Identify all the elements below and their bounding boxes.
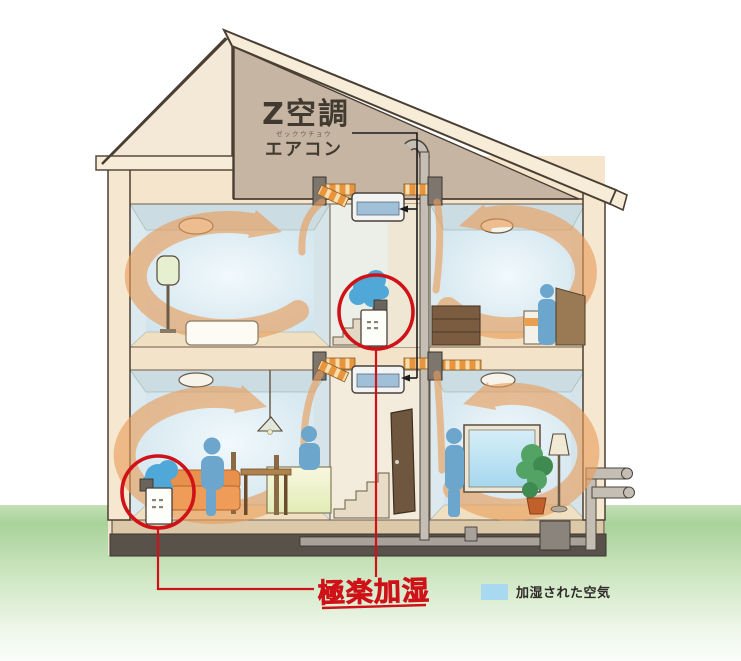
legend: 加湿された空気 xyxy=(481,584,611,601)
person-icon xyxy=(301,426,317,442)
house-foundation xyxy=(110,518,606,556)
attic-product-type: エアコン xyxy=(265,140,343,160)
person-icon xyxy=(540,284,554,298)
air-stream xyxy=(436,202,440,290)
person-icon xyxy=(446,428,462,444)
attic-label: Z空調 ゼックウチョウ エアコン xyxy=(262,97,350,160)
door-knob-icon xyxy=(395,460,399,464)
person-icon xyxy=(538,299,556,345)
bed-icon xyxy=(186,321,258,345)
duct xyxy=(443,360,481,370)
chair-icon xyxy=(274,455,279,515)
door xyxy=(391,409,415,514)
attic-product-reading: ゼックウチョウ xyxy=(276,129,332,138)
underfloor-pipe-stub xyxy=(465,527,477,541)
desk-icon xyxy=(556,288,585,345)
underfloor-unit xyxy=(540,521,570,550)
ceiling-light-icon xyxy=(179,373,213,387)
dining-table-icon xyxy=(241,469,291,475)
illustration-canvas: Z空調 ゼックウチョウ エアコン 極楽加湿 加湿された空気 xyxy=(0,0,741,661)
person-icon xyxy=(204,438,221,455)
legend-swatch xyxy=(481,584,508,600)
legend-label: 加湿された空気 xyxy=(515,585,611,601)
cabinet-icon xyxy=(432,306,480,345)
house-structure xyxy=(96,30,635,556)
house-cutaway-diagram: Z空調 ゼックウチョウ エアコン 極楽加湿 加湿された空気 xyxy=(0,0,741,661)
gable-face xyxy=(110,38,232,157)
floor-lamp-icon xyxy=(157,256,179,285)
flat-roof xyxy=(96,156,233,170)
attic-product-name: Z空調 xyxy=(262,97,350,132)
